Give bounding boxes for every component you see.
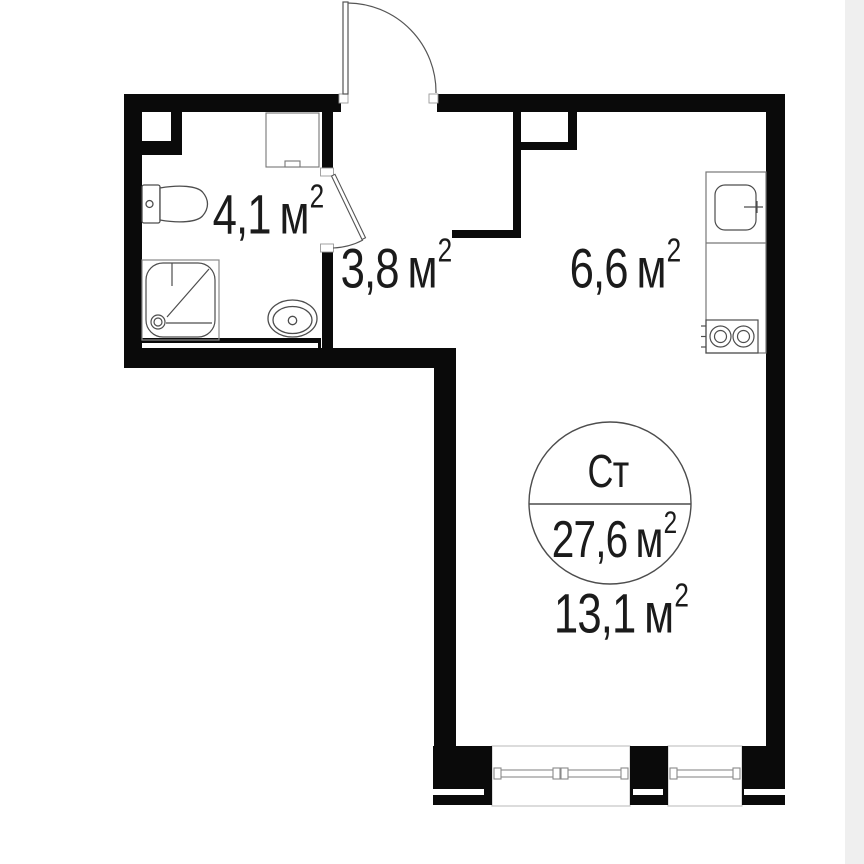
- washing-machine-icon: [266, 113, 319, 167]
- page-margin-strip: [845, 0, 864, 864]
- wall-groove-bathroom: [142, 343, 318, 348]
- window-right-jamb-a: [670, 768, 677, 779]
- shower-drain-inner: [154, 318, 162, 326]
- wall-right: [766, 94, 785, 805]
- sink-rim: [268, 300, 317, 337]
- kitchen-area-sup: 2: [667, 233, 681, 270]
- toilet-button: [146, 201, 153, 208]
- wall-groove-right: [744, 789, 785, 795]
- room-label-hallway: 3,8м2: [341, 236, 452, 301]
- wall-groove-middle: [633, 789, 663, 795]
- entrance-jamb-right: [429, 94, 438, 103]
- main-room-area-unit: м: [644, 582, 673, 645]
- stamp-area-sup: 2: [664, 505, 677, 540]
- wall-kitchen-partition: [513, 112, 521, 238]
- floor-plan-canvas: 4,1м2 3,8м2 6,6м2 Ст 27,6м2 13,1м2: [0, 0, 864, 864]
- bathroom-door-leaf: [332, 174, 366, 239]
- wall-bathroom-bottom: [142, 338, 321, 368]
- wall-groove-left: [433, 789, 484, 795]
- washer-notch: [285, 161, 300, 167]
- shower-icon: [142, 260, 219, 340]
- bathroom-area-sup: 2: [310, 179, 324, 216]
- floor-plan-drawing: [0, 0, 864, 864]
- wall-mainroom-left: [434, 348, 456, 746]
- kitchen-area-unit: м: [636, 237, 665, 300]
- main-room-area-sup: 2: [674, 578, 688, 615]
- hallway-area-sup: 2: [438, 233, 452, 270]
- bathroom-sink-icon: [268, 300, 317, 337]
- room-label-main-room: 13,1м2: [554, 581, 688, 646]
- wall-kitchen-shaft-bottom: [521, 142, 577, 150]
- room-label-kitchen: 6,6м2: [570, 236, 681, 301]
- window-right-jamb-b: [733, 768, 740, 779]
- kitchen-counter: [701, 172, 766, 353]
- wall-bathroom-right-lower: [322, 252, 333, 348]
- vent-shaft-icon: [142, 112, 171, 141]
- door-jambs: [321, 94, 439, 252]
- stamp-area-value: 27,6: [552, 511, 628, 569]
- shower-diagonal: [167, 269, 209, 317]
- entrance-door-icon: [343, 2, 436, 94]
- window-left-jamb-a: [494, 768, 501, 779]
- bathroom-area-value: 4,1: [213, 183, 271, 246]
- kitchen-area-value: 6,6: [570, 237, 628, 300]
- window-right-glazing: [672, 770, 738, 777]
- wall-top-left: [124, 94, 341, 112]
- window-icon: [494, 768, 628, 779]
- window-icon-2: [670, 768, 740, 779]
- wall-top-right: [437, 94, 785, 112]
- stamp-type-value: Ст: [588, 445, 629, 497]
- window-left-jamb-b: [621, 768, 628, 779]
- wall-bottom-pier-right: [742, 746, 785, 805]
- bathroom-jamb-top: [321, 168, 334, 176]
- wall-bathroom-right-upper: [322, 112, 333, 168]
- stamp-area-unit: м: [636, 511, 663, 569]
- wall-kitchen-stub: [452, 230, 521, 238]
- shower-drain-outer: [151, 315, 165, 329]
- windows: [494, 768, 740, 779]
- wall-left: [124, 94, 142, 368]
- stamp-type-label: Ст: [588, 444, 629, 498]
- entrance-door-leaf: [343, 2, 348, 94]
- room-label-bathroom: 4,1м2: [213, 182, 324, 247]
- toilet-icon: [142, 185, 208, 223]
- washer-body: [266, 113, 319, 167]
- entrance-door-arc: [348, 3, 436, 93]
- main-room-area-value: 13,1: [554, 582, 636, 645]
- wall-bottom-pier-middle: [630, 746, 668, 805]
- stamp-area-label: 27,6м2: [552, 510, 677, 570]
- hallway-area-value: 3,8: [341, 237, 399, 300]
- window-left-mullion-a: [553, 768, 560, 779]
- bathroom-area-unit: м: [279, 183, 308, 246]
- hallway-area-unit: м: [407, 237, 436, 300]
- wall-bottom-pier-left: [433, 746, 492, 805]
- entrance-jamb-left: [339, 94, 348, 103]
- window-left-mullion-b: [561, 768, 568, 779]
- toilet-bowl: [160, 186, 208, 222]
